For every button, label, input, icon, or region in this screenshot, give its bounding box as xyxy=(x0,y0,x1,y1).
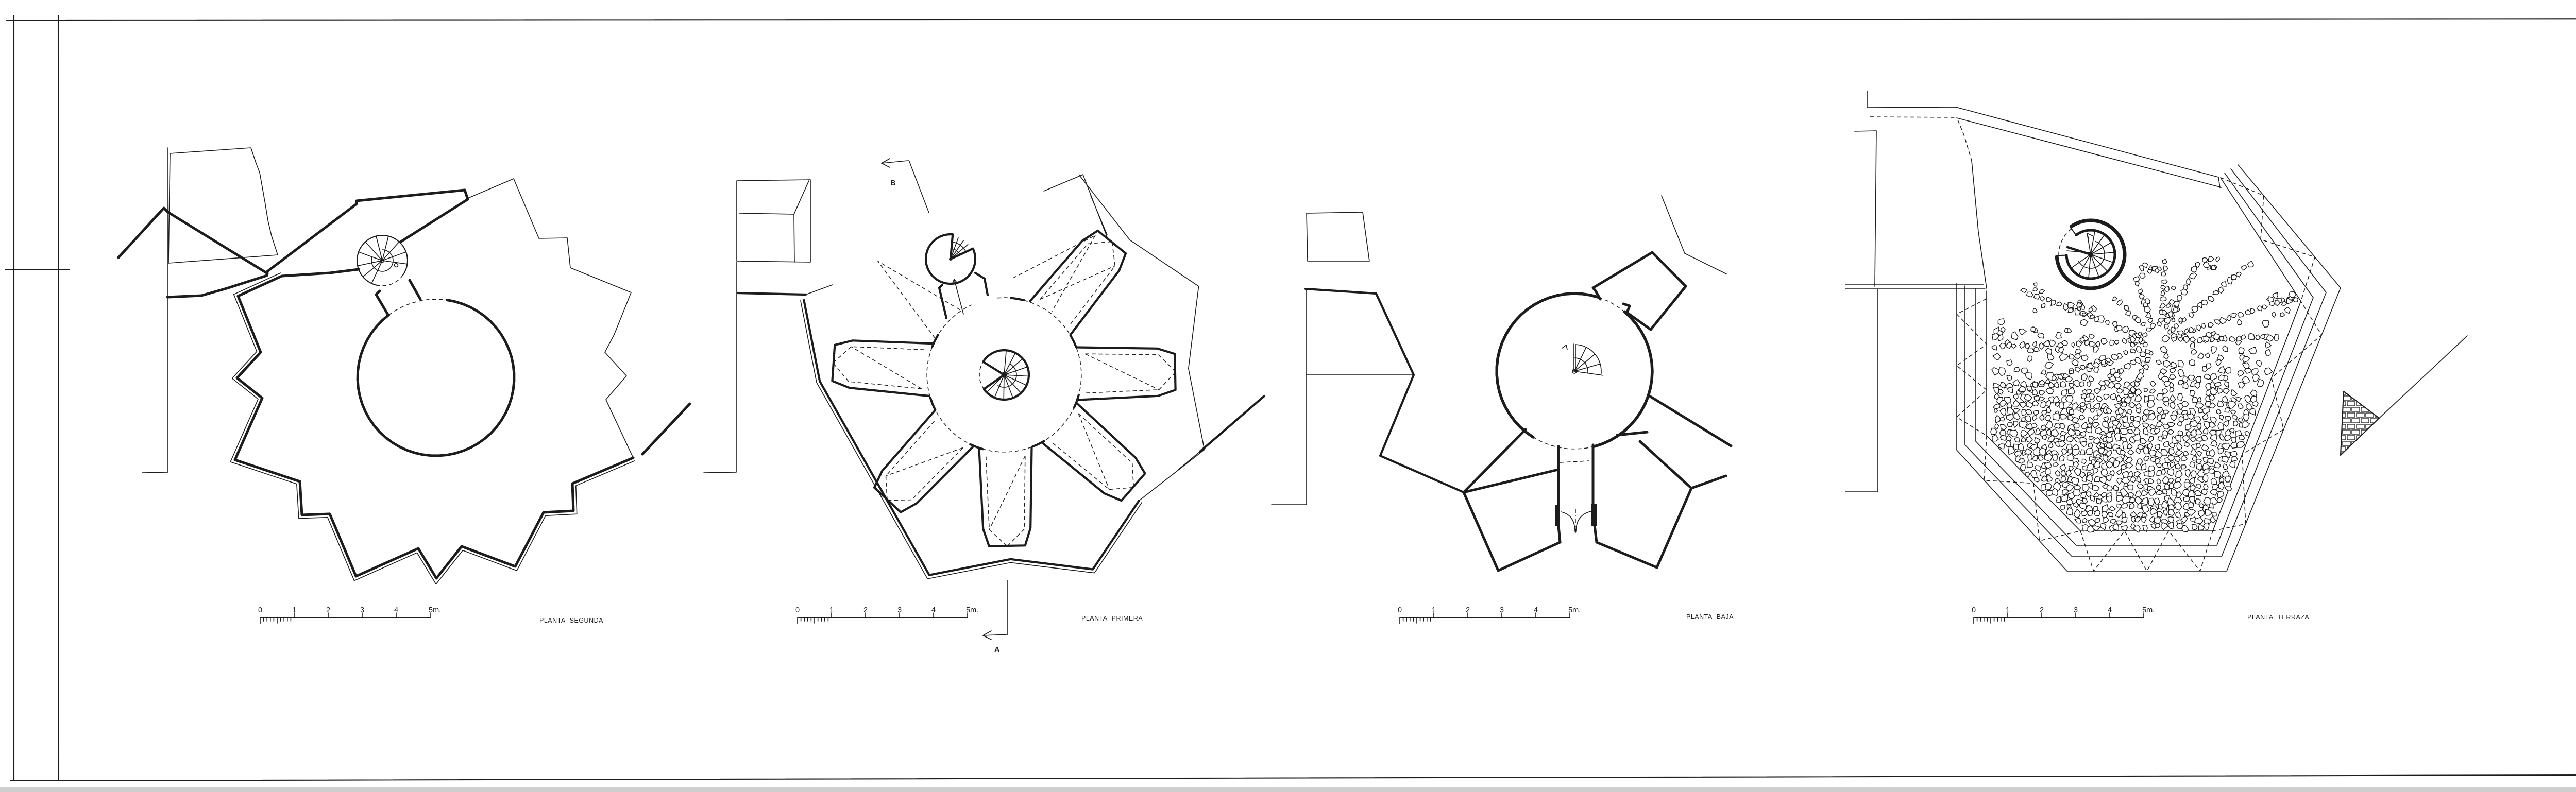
svg-text:2: 2 xyxy=(863,606,868,614)
svg-text:PLANTA PRIMERA: PLANTA PRIMERA xyxy=(1081,615,1143,622)
svg-text:0: 0 xyxy=(258,606,262,614)
svg-text:4: 4 xyxy=(394,606,398,614)
svg-text:3: 3 xyxy=(897,606,902,614)
svg-text:2: 2 xyxy=(1466,606,1470,614)
svg-text:0: 0 xyxy=(795,606,800,614)
svg-text:4: 4 xyxy=(2108,606,2112,614)
svg-text:5m.: 5m. xyxy=(2142,606,2155,614)
svg-text:0: 0 xyxy=(1398,606,1402,614)
svg-text:0: 0 xyxy=(1972,606,1976,614)
svg-text:A: A xyxy=(994,646,1000,654)
svg-text:4: 4 xyxy=(931,606,936,614)
svg-text:1: 1 xyxy=(1432,606,1436,614)
svg-text:2: 2 xyxy=(2040,606,2044,614)
svg-text:3: 3 xyxy=(360,606,364,614)
svg-text:5m.: 5m. xyxy=(429,606,441,614)
svg-text:2: 2 xyxy=(326,606,330,614)
svg-text:5m.: 5m. xyxy=(1568,606,1581,614)
svg-text:4: 4 xyxy=(1534,606,1538,614)
svg-text:1: 1 xyxy=(2006,606,2010,614)
svg-text:B: B xyxy=(890,179,895,187)
svg-text:PLANTA SEGUNDA: PLANTA SEGUNDA xyxy=(539,617,603,624)
svg-text:PLANTA BAJA: PLANTA BAJA xyxy=(1686,613,1734,621)
svg-text:3: 3 xyxy=(2074,606,2078,614)
svg-text:3: 3 xyxy=(1500,606,1504,614)
svg-text:1: 1 xyxy=(292,606,296,614)
svg-text:1: 1 xyxy=(829,606,834,614)
svg-text:5m.: 5m. xyxy=(966,606,978,614)
svg-text:PLANTA TERRAZA: PLANTA TERRAZA xyxy=(2247,614,2309,621)
